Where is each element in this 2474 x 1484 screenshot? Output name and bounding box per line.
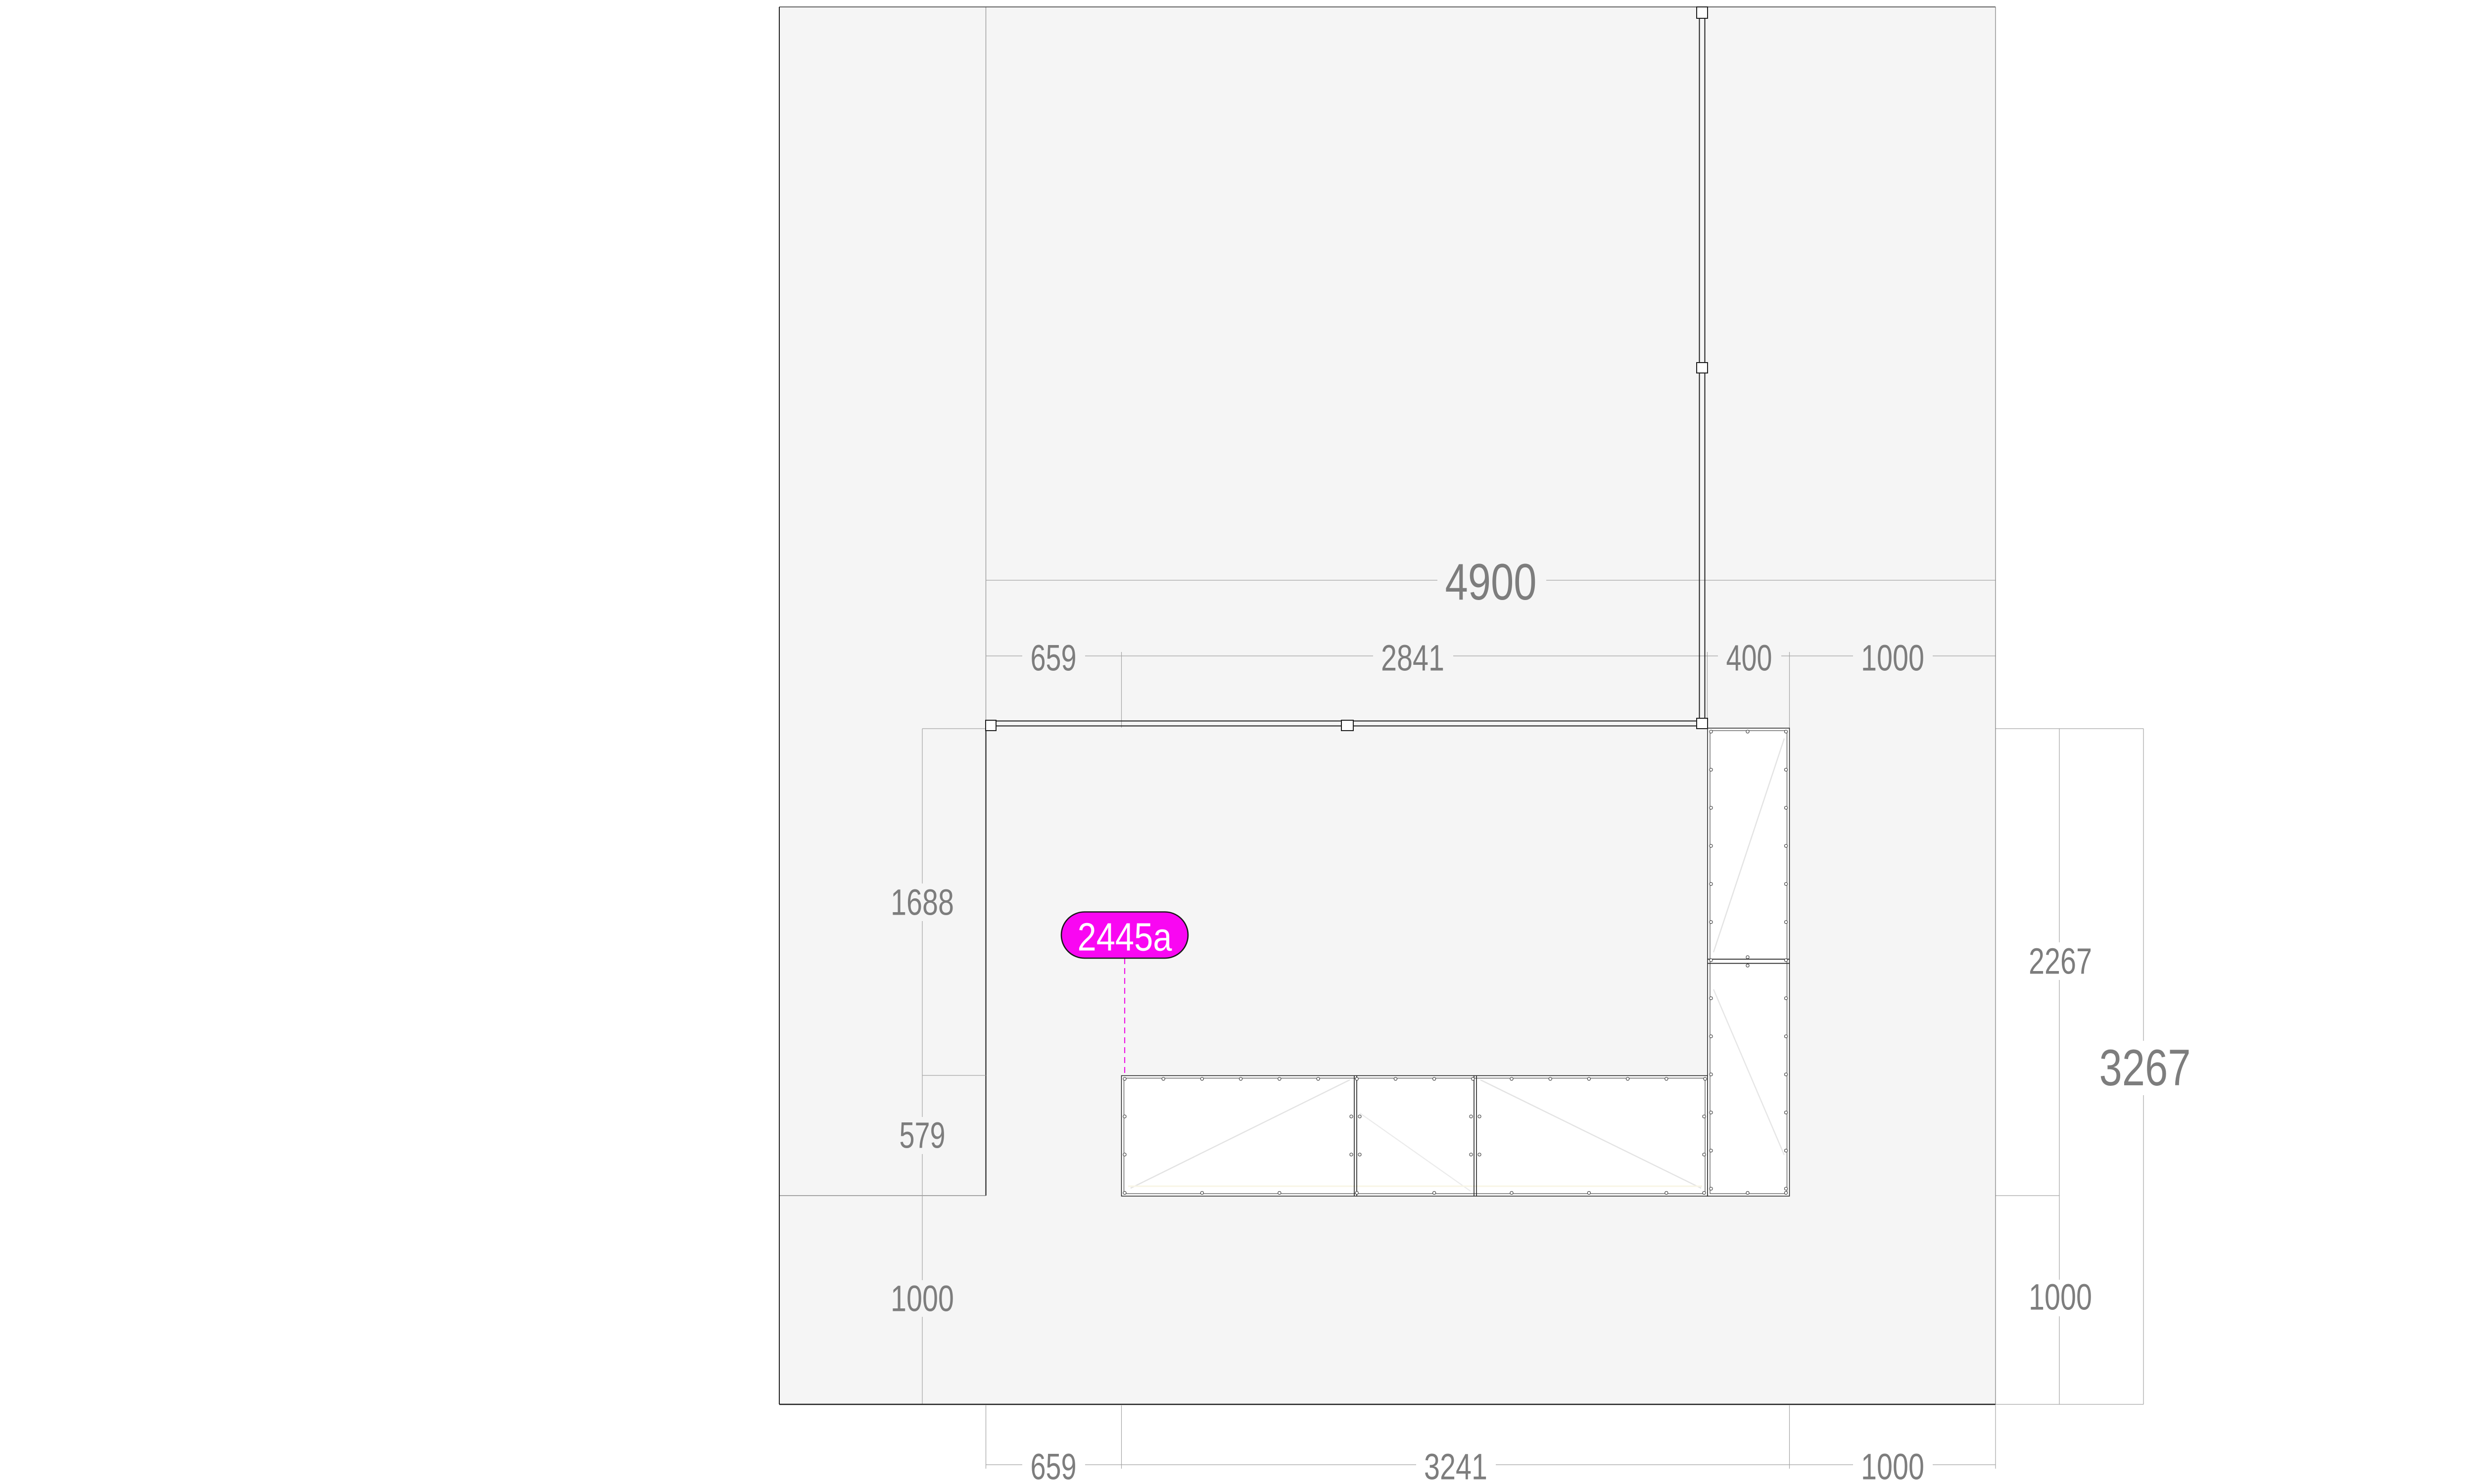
svg-text:1688: 1688: [891, 882, 954, 923]
svg-text:3267: 3267: [2099, 1039, 2191, 1097]
svg-text:659: 659: [1031, 1446, 1077, 1484]
svg-text:4900: 4900: [1445, 554, 1537, 611]
svg-text:2841: 2841: [1381, 638, 1444, 679]
svg-text:2445a: 2445a: [1078, 915, 1172, 959]
svg-text:1000: 1000: [2029, 1277, 2092, 1318]
svg-text:579: 579: [900, 1115, 946, 1156]
svg-text:1000: 1000: [1861, 638, 1924, 679]
svg-text:1000: 1000: [891, 1278, 954, 1319]
svg-text:659: 659: [1031, 638, 1077, 679]
svg-text:400: 400: [1726, 638, 1772, 679]
svg-text:1000: 1000: [1861, 1446, 1924, 1484]
svg-text:2267: 2267: [2029, 941, 2092, 982]
svg-text:3241: 3241: [1424, 1446, 1487, 1484]
